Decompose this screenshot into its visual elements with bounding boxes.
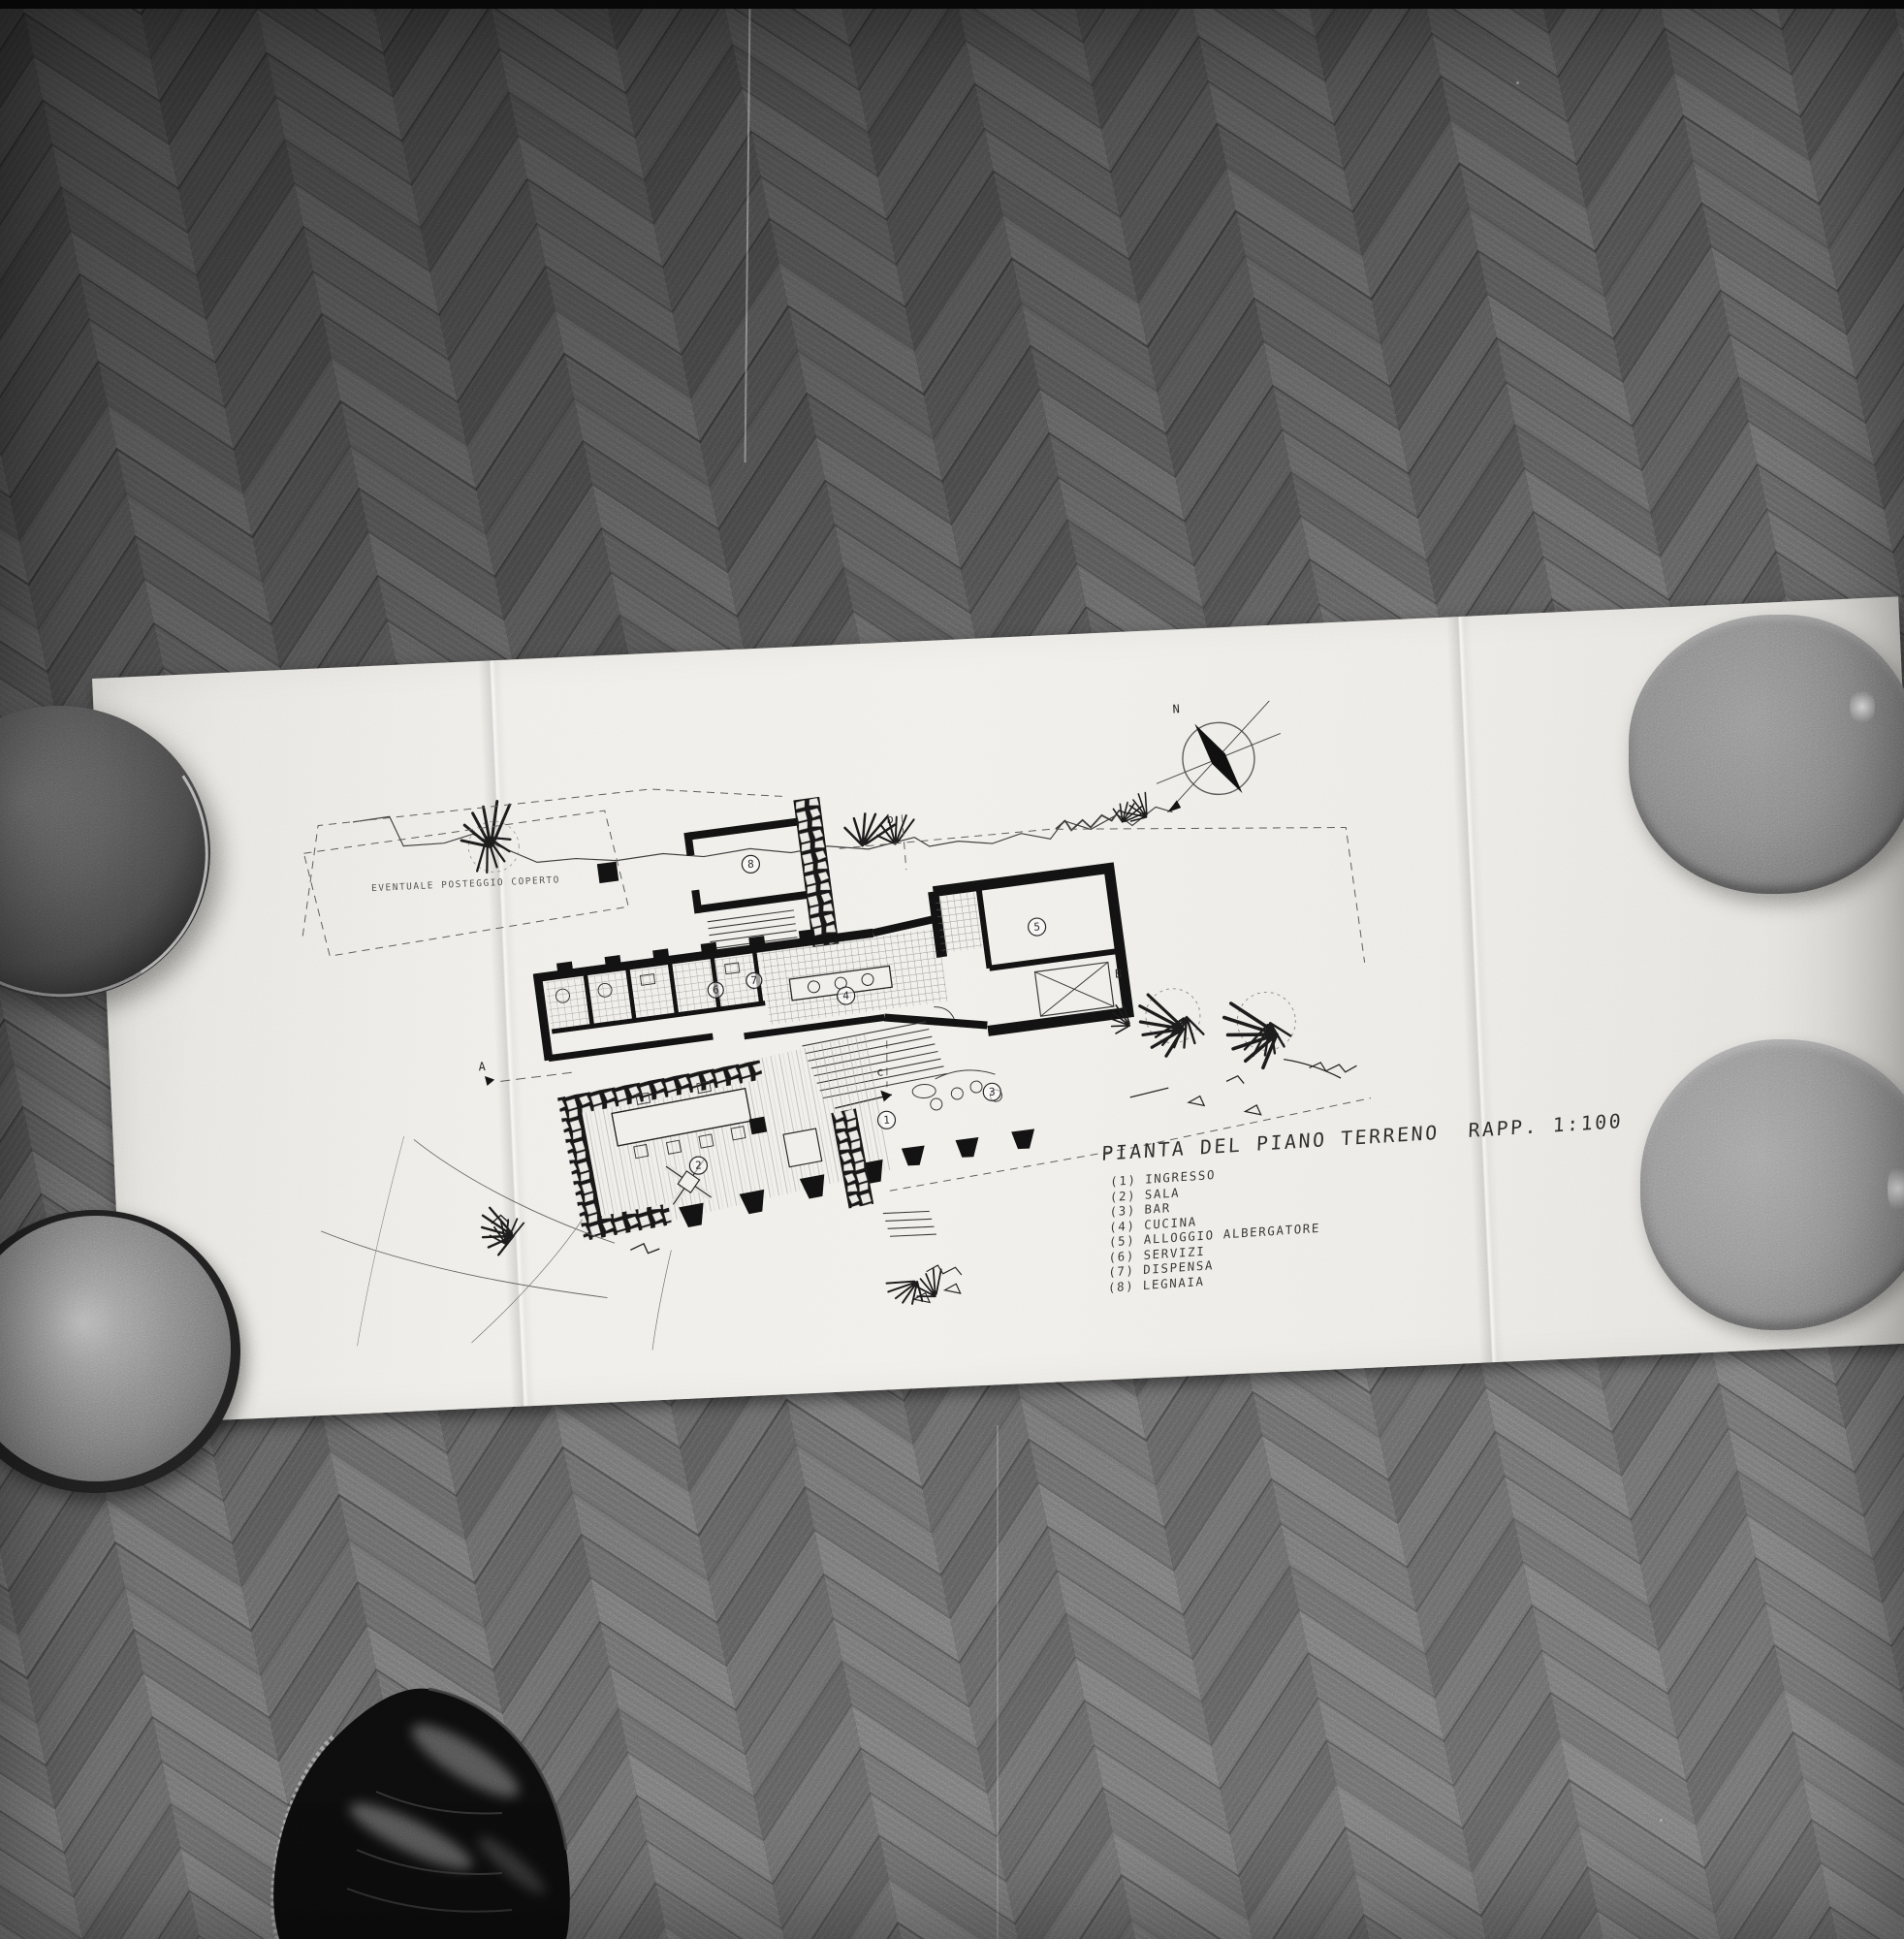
film-scratch: [997, 1425, 999, 1939]
svg-text:5: 5: [1033, 920, 1040, 933]
svg-text:3: 3: [989, 1086, 996, 1098]
room-number-7: 7: [746, 972, 762, 989]
plate-top-right: [1629, 615, 1904, 894]
svg-text:4: 4: [842, 989, 850, 1001]
legend: (1)INGRESSO (2)SALA (3)BAR (4)CUCINA (5)…: [1108, 1160, 1322, 1295]
room-number-3: 3: [983, 1083, 1001, 1101]
floor-plan-drawing: N EVENTUALE POSTEGGIO COPERTO: [240, 669, 1627, 1399]
room-number-2: 2: [689, 1157, 708, 1175]
north-label: N: [1172, 702, 1181, 715]
room-number-8: 8: [742, 855, 760, 874]
svg-text:c: c: [876, 1065, 885, 1078]
svg-text:B: B: [1115, 967, 1124, 980]
compass-rose-icon: N: [1153, 697, 1284, 812]
room-number-6: 6: [708, 982, 724, 999]
svg-text:A: A: [478, 1060, 487, 1073]
trees-right: [1101, 980, 1359, 1122]
room-number-4: 4: [837, 987, 855, 1005]
svg-text:1: 1: [883, 1114, 890, 1127]
plate-right: [1640, 1039, 1904, 1330]
shoe: [221, 1646, 667, 1939]
svg-text:7: 7: [750, 974, 757, 987]
svg-text:2: 2: [695, 1160, 702, 1172]
room-number-5: 5: [1028, 918, 1046, 937]
site-note: EVENTUALE POSTEGGIO COPERTO: [371, 874, 560, 894]
svg-text:6: 6: [713, 984, 719, 997]
room-number-1: 1: [877, 1111, 896, 1129]
parking-area: EVENTUALE POSTEGGIO COPERTO: [302, 810, 630, 957]
photograph-floorplan-on-parquet: N EVENTUALE POSTEGGIO COPERTO: [0, 0, 1904, 1939]
film-speck: [1516, 81, 1519, 84]
film-edge: [0, 0, 1904, 9]
svg-text:8: 8: [747, 858, 754, 871]
film-speck: [1660, 1819, 1663, 1822]
svg-text:b: b: [886, 812, 895, 826]
